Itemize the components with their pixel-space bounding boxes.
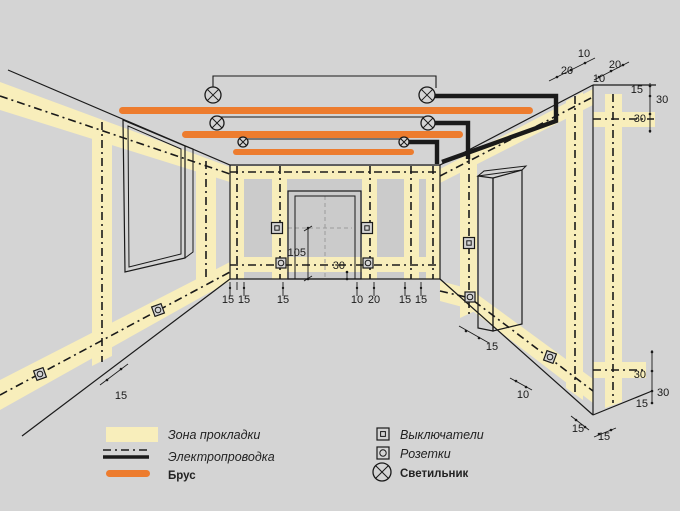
dim-label: 15 [222, 294, 234, 306]
dim-label: 15 [115, 390, 127, 402]
dim-label: 20 [368, 294, 380, 306]
wiring-diagram-page: 10 20 20 10 15 30 30 105 30 15 15 15 10 … [0, 0, 680, 511]
lamp-icon [421, 116, 435, 130]
legend-zone-label: Зона прокладки [168, 428, 260, 442]
outlet-icon [377, 447, 389, 459]
lamp-icon [210, 116, 224, 130]
legend-wiring-label: Электропроводка [168, 450, 275, 464]
dim-label: 15 [598, 431, 610, 443]
dim-label: 30 [634, 369, 646, 381]
dim-label: 20 [561, 65, 573, 77]
dim-label: 20 [609, 59, 621, 71]
lamp-icon [238, 137, 248, 147]
dim-label: 15 [277, 294, 289, 306]
beam-bar [182, 131, 463, 138]
outlet-icon [363, 258, 373, 268]
beam-bar [233, 149, 414, 155]
dim-label: 30 [634, 113, 646, 125]
dim-label: 15 [636, 398, 648, 410]
dim-label: 30 [657, 387, 669, 399]
dim-label: 10 [593, 73, 605, 85]
dim-label: 10 [517, 389, 529, 401]
legend-lamp-label: Светильник [400, 468, 469, 480]
zone-swatch [106, 427, 158, 442]
dim-label: 15 [238, 294, 250, 306]
switch-icon [464, 238, 475, 249]
switch-icon [377, 428, 389, 440]
outlet-icon [276, 258, 286, 268]
lamp-icon [419, 87, 435, 103]
dim-label: 10 [578, 48, 590, 60]
legend-item-outlets: Розетки [377, 447, 451, 461]
dim-label: 15 [415, 294, 427, 306]
dim-label: 15 [399, 294, 411, 306]
lamp-icon [399, 137, 409, 147]
beam-swatch [106, 470, 150, 477]
legend-switches-label: Выключатели [400, 428, 484, 442]
room-wiring-diagram: 10 20 20 10 15 30 30 105 30 15 15 15 10 … [0, 0, 680, 511]
dim-label: 10 [351, 294, 363, 306]
outlet-icon [465, 292, 475, 302]
dim-label: 15 [631, 84, 643, 96]
lamp-icon [205, 87, 221, 103]
dim-label: 15 [486, 341, 498, 353]
dim-label: 105 [288, 247, 306, 259]
beam-bar [119, 107, 533, 114]
dim-label: 15 [572, 423, 584, 435]
switch-icon [272, 223, 283, 234]
legend-beam-label: Брус [168, 470, 196, 482]
legend-outlets-label: Розетки [400, 447, 451, 461]
switch-icon [362, 223, 373, 234]
dim-label: 30 [333, 260, 345, 272]
dim-label: 30 [656, 94, 668, 106]
legend-item-zone: Зона прокладки [106, 427, 260, 442]
